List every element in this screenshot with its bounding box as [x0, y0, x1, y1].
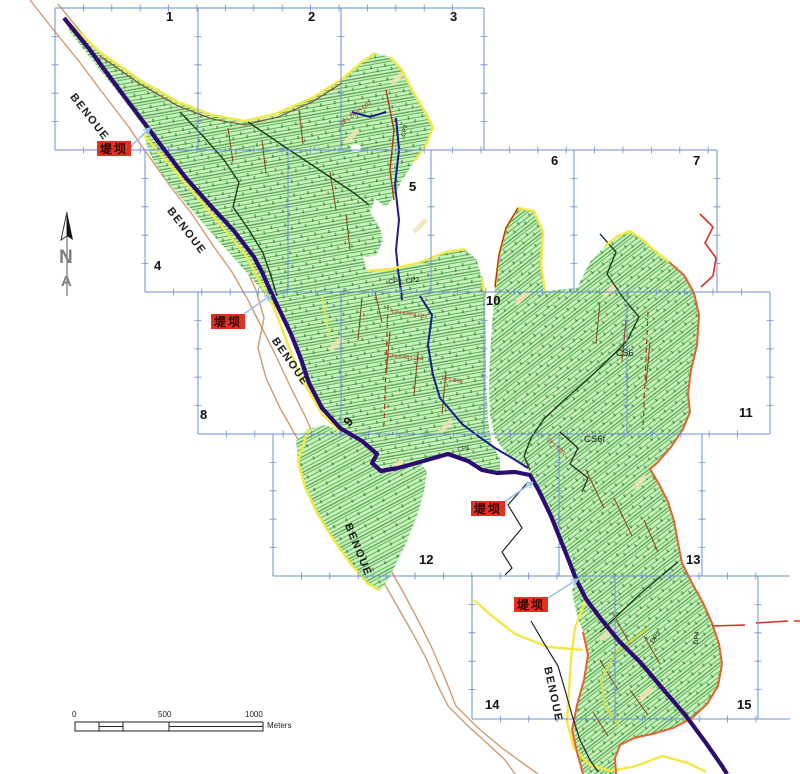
- dike-label: 堤坝: [514, 597, 548, 612]
- north-letter: A: [61, 274, 72, 289]
- sheet-number: 8: [200, 408, 207, 421]
- sheet-number: 5: [409, 180, 416, 193]
- sheet-number: 3: [450, 10, 457, 23]
- scale-bar: [75, 722, 263, 731]
- scale-tick-label: 1000: [245, 711, 263, 719]
- dike-arrow: [244, 295, 271, 314]
- sheet-number: 4: [154, 259, 161, 272]
- sheet-number: 6: [551, 154, 558, 167]
- dike-label: 堤坝: [211, 314, 245, 329]
- dike-label: 堤坝: [471, 501, 505, 516]
- sheet-number: 10: [486, 294, 500, 307]
- sheet-number: 2: [308, 10, 315, 23]
- feature-label: CS6f: [584, 435, 605, 445]
- irrigated-area: [64, 18, 722, 774]
- north-letter: N: [59, 248, 73, 267]
- feature-label: DP4: [694, 631, 702, 644]
- scale-unit-label: Meters: [267, 722, 291, 730]
- sheet-number: 1: [166, 10, 173, 23]
- scale-tick-label: 0: [72, 711, 76, 719]
- sheet-number: 14: [485, 698, 499, 711]
- sheet-number: 11: [739, 406, 753, 419]
- dike-arrow: [504, 482, 533, 502]
- sheet-number: 12: [419, 553, 433, 566]
- map-canvas: [0, 0, 800, 774]
- dike-label: 堤坝: [97, 141, 131, 156]
- sheet-number: 13: [686, 553, 700, 566]
- sheet-number: 15: [737, 698, 751, 711]
- feature-label: CS6: [616, 349, 634, 358]
- sheet-number: 7: [693, 154, 700, 167]
- scale-tick-label: 500: [158, 711, 171, 719]
- map-page: 123456789101112131415BENOUEBENOUEBENOUEB…: [0, 0, 800, 774]
